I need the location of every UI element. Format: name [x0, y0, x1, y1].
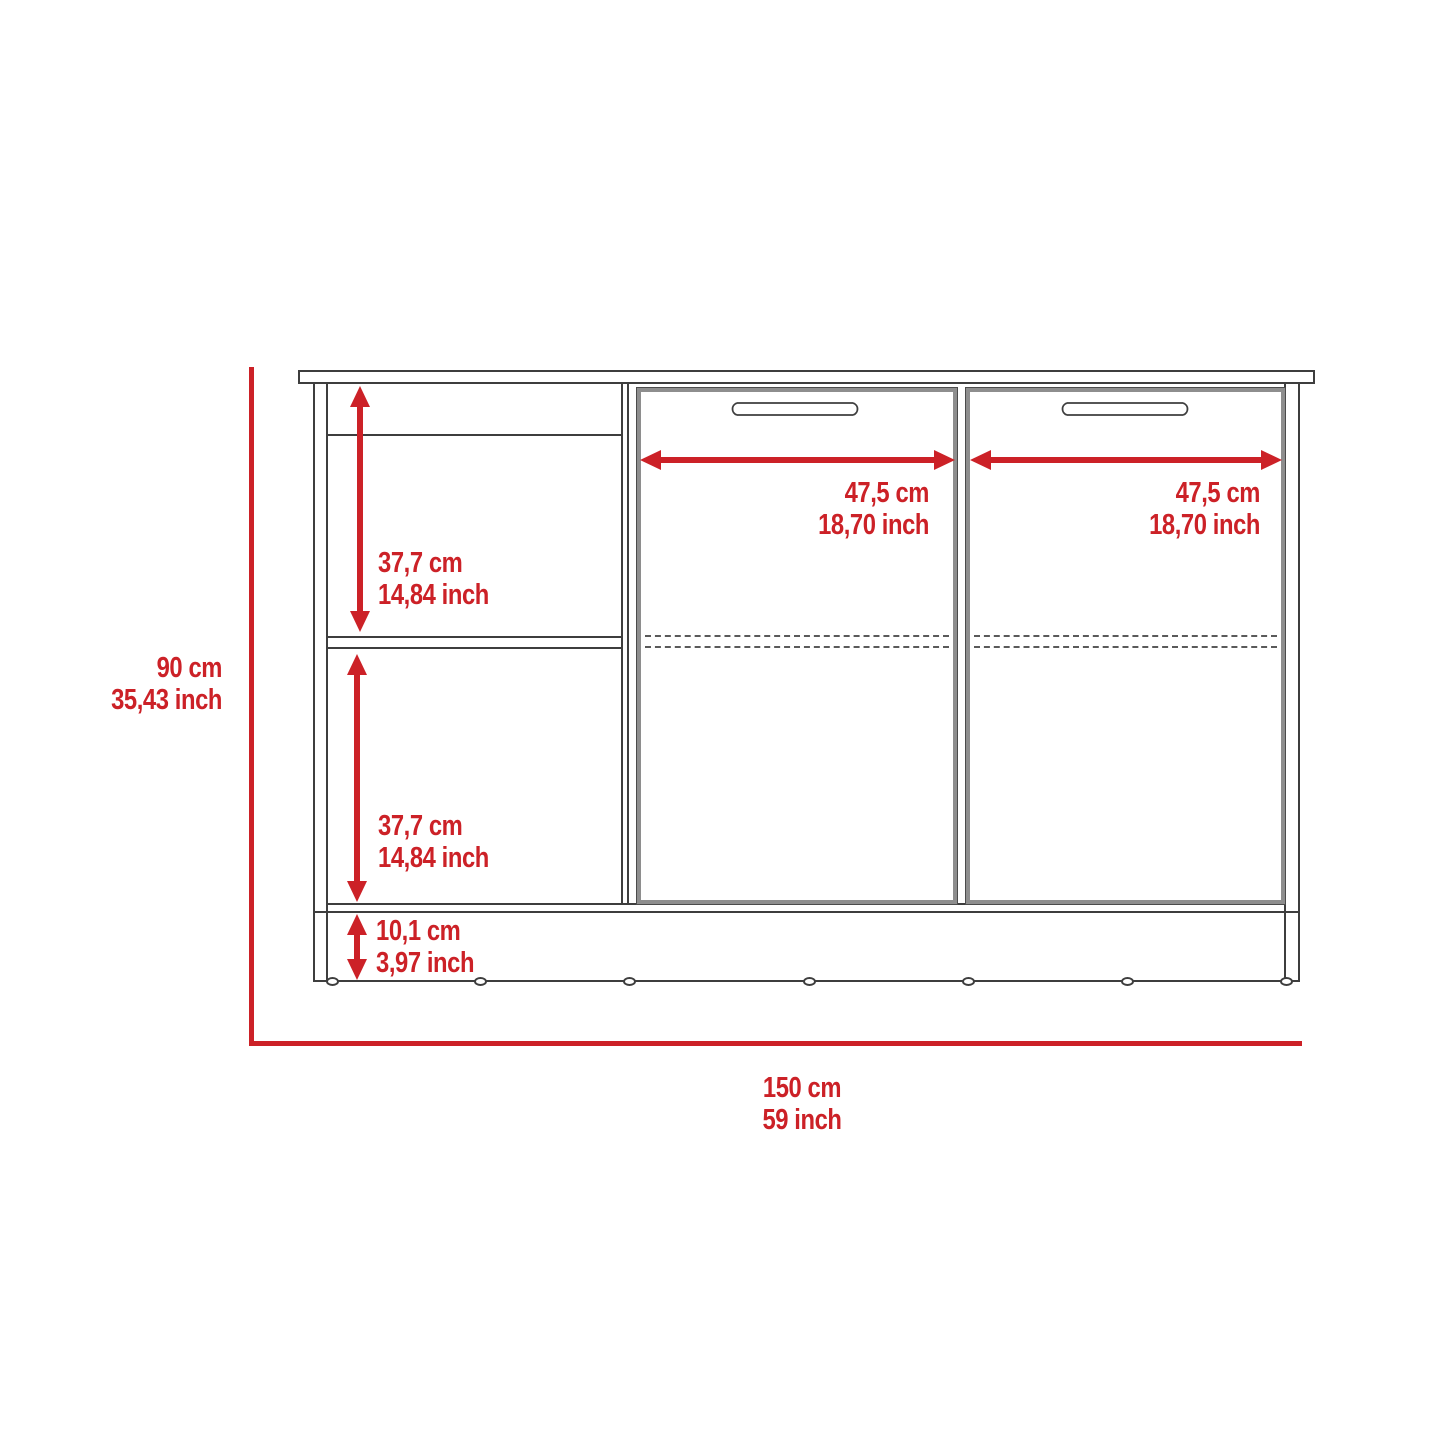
dimension-diagram: 90 cm 35,43 inch 37,7 cm 14,84 inch 37,7…	[0, 0, 1445, 1445]
height-inch-text: 35,43 inch	[58, 684, 222, 716]
right-door-handle-icon	[1057, 401, 1193, 417]
cabinet-foot	[1280, 977, 1293, 986]
cabinet-foot	[474, 977, 487, 986]
right-door-inch-text: 18,70 inch	[1096, 509, 1260, 541]
base-dimension-arrow	[347, 914, 367, 980]
base-cm-text: 10,1 cm	[376, 915, 474, 947]
open-section-shelf-top-line	[327, 636, 623, 638]
lower-shelf-dimension-arrow	[347, 654, 367, 902]
lower-shelf-cm-text: 37,7 cm	[378, 810, 489, 842]
upper-shelf-cm-text: 37,7 cm	[378, 547, 489, 579]
right-side-outer-line	[1298, 384, 1300, 982]
left-door-handle-icon	[727, 401, 863, 417]
left-door-inch-text: 18,70 inch	[765, 509, 929, 541]
height-extension-line	[249, 367, 254, 1046]
upper-shelf-inch-text: 14,84 inch	[378, 579, 489, 611]
left-side-inner-line	[326, 384, 328, 982]
height-dimension-label: 90 cm 35,43 inch	[58, 652, 222, 716]
right-door-hidden-shelf-dash-bottom	[974, 646, 1277, 648]
center-divider-line-right	[627, 384, 629, 904]
cabinet-foot	[1121, 977, 1134, 986]
height-cm-text: 90 cm	[58, 652, 222, 684]
base-inch-text: 3,97 inch	[376, 947, 474, 979]
lower-shelf-inch-text: 14,84 inch	[378, 842, 489, 874]
left-door-cm-text: 47,5 cm	[765, 477, 929, 509]
right-door-width-label: 47,5 cm 18,70 inch	[1096, 477, 1260, 541]
cabinet-foot	[962, 977, 975, 986]
plinth-top-line	[313, 911, 1300, 913]
cabinet-foot	[326, 977, 339, 986]
left-door-width-label: 47,5 cm 18,70 inch	[765, 477, 929, 541]
total-width-cm-text: 150 cm	[720, 1072, 884, 1104]
upper-shelf-dimension-label: 37,7 cm 14,84 inch	[378, 547, 489, 611]
total-width-inch-text: 59 inch	[720, 1104, 884, 1136]
left-door-width-arrow	[640, 450, 955, 470]
lower-shelf-dimension-label: 37,7 cm 14,84 inch	[378, 810, 489, 874]
left-door-hidden-shelf-dash-bottom	[645, 646, 949, 648]
right-door-width-arrow	[970, 450, 1282, 470]
upper-shelf-dimension-arrow	[350, 386, 370, 632]
cabinet-foot	[803, 977, 816, 986]
open-section-shelf-bottom-line	[327, 647, 623, 649]
center-divider-line-left	[621, 384, 623, 904]
total-width-label: 150 cm 59 inch	[720, 1072, 884, 1136]
open-section-top-rail-line	[327, 434, 623, 436]
right-door-hidden-shelf-dash-top	[974, 635, 1277, 637]
base-dimension-label: 10,1 cm 3,97 inch	[376, 915, 474, 979]
left-side-outer-line	[313, 384, 315, 982]
cabinet-foot	[623, 977, 636, 986]
width-extension-line	[249, 1041, 1302, 1046]
right-door-cm-text: 47,5 cm	[1096, 477, 1260, 509]
left-door-hidden-shelf-dash-top	[645, 635, 949, 637]
cabinet-top-board	[298, 370, 1315, 384]
